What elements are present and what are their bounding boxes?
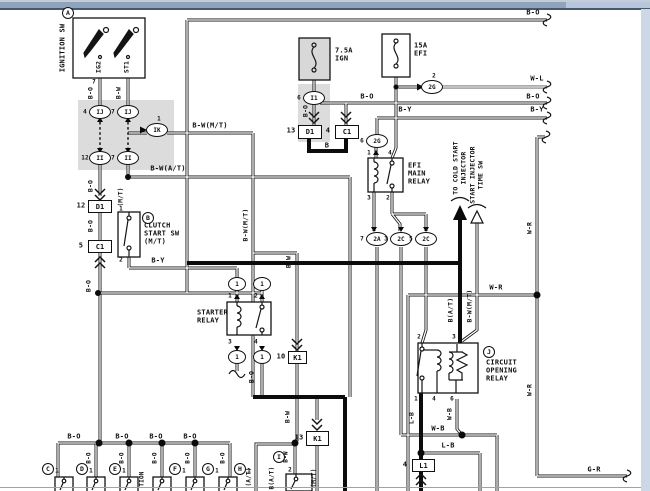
solid-arrowhead <box>453 205 467 220</box>
label-b-w-a-t: B-W(A/T) <box>150 166 185 173</box>
titlebar-edge <box>0 8 650 10</box>
connector-num-12-ii: 12 <box>81 155 89 162</box>
circle-label-b: B <box>142 212 154 224</box>
label-b-o: B-O <box>88 87 95 99</box>
label-relay: RELAY <box>197 318 219 325</box>
label-start-injector: START INJECTOR <box>470 146 477 204</box>
label-1: 1 <box>247 468 251 475</box>
circle-label-d: D <box>76 463 88 475</box>
label-b-o: B-O <box>185 452 192 463</box>
label-b-o: B-O <box>152 452 159 463</box>
wire-group-doubled <box>58 20 627 491</box>
wire-b-w-mt-arrow <box>462 222 477 341</box>
label-relay: RELAY <box>408 179 430 186</box>
label-1: 1 <box>215 468 219 475</box>
connector-oval-1: 1 <box>253 277 271 291</box>
label-w-r: W-R <box>527 222 534 234</box>
brace-left <box>451 198 469 202</box>
ground-icon <box>229 371 245 378</box>
label-1: 1 <box>119 206 123 213</box>
label-2: 2 <box>417 334 421 341</box>
label-tion: TION <box>139 471 146 486</box>
open-arrowhead <box>471 211 483 223</box>
label-ignition-sw: IGNITION SW <box>60 24 67 73</box>
connector-num-4-l1: 4 <box>403 461 407 468</box>
label-b-o: B-O <box>220 452 227 463</box>
label-injector: INJECTOR <box>461 152 468 185</box>
page-bottom-rule <box>0 487 641 488</box>
label-b-o: B-O <box>86 452 93 463</box>
label-b-o: B-O <box>67 434 80 441</box>
wire-w-r-vert <box>537 137 627 476</box>
connector-oval-2-2g: 2G <box>421 80 443 94</box>
circle-label-h: H <box>234 463 246 475</box>
label-b-y: B-Y <box>530 107 543 114</box>
efi-main-relay-box <box>368 158 403 192</box>
label-b-w: B-W <box>285 411 292 423</box>
label-to-cold-start: TO COLD START <box>453 141 460 194</box>
ignition-switch-box <box>73 18 145 78</box>
label-b-a-t: B(A/T) <box>448 298 455 323</box>
label-15a: 15A <box>414 43 427 50</box>
connector-oval-1: 1 <box>253 350 271 364</box>
label-1: 1 <box>182 468 186 475</box>
wire-group-doubled <box>58 20 627 491</box>
label-w-b: W-B <box>431 426 444 433</box>
connector-box-4-c1: C1 <box>335 125 359 139</box>
connector-num-4-c1: 4 <box>326 128 330 135</box>
wire-w-r-vert <box>537 137 627 476</box>
label-b-a-t: B(A/T) <box>269 467 276 490</box>
connector-num-12-d1: 12 <box>77 202 86 209</box>
connector-box-12-d1: D1 <box>88 200 112 213</box>
label-b-o: B-O <box>303 105 310 117</box>
label-2: 2 <box>254 293 258 300</box>
label-1: 1 <box>414 396 418 403</box>
connector-num-6-i1: 6 <box>297 95 301 102</box>
window-right-edge <box>641 9 650 491</box>
label-b-w: B-W <box>116 87 123 99</box>
label-b-y: B-Y <box>398 107 411 114</box>
connector-num-5-2c: 5 <box>409 236 413 243</box>
label-g-r: G-R <box>587 467 600 474</box>
label-efi: EFI <box>408 163 421 170</box>
label-1: 1 <box>228 293 232 300</box>
connector-num-10-k1: 10 <box>277 353 286 360</box>
label-b-o: B-O <box>526 10 539 17</box>
connector-num-7-ij: 7 <box>111 109 115 116</box>
connector-oval-1: 1 <box>228 277 246 291</box>
label-4: 4 <box>432 396 436 403</box>
connector-num-5-c1: 5 <box>79 242 83 249</box>
label-l-b: L-B <box>409 412 416 424</box>
label-opening: OPENING <box>486 368 517 375</box>
label-2: 2 <box>119 257 123 264</box>
wiring-diagram-page: IGNITION SWIG2ST17B-OB-WB-W(M/T)B-W(A/T)… <box>0 0 650 491</box>
label-b-o: B-O <box>115 434 128 441</box>
connector-oval-12-ii: II <box>89 151 111 165</box>
label-relay: RELAY <box>486 376 508 383</box>
connector-box-4-l1: L1 <box>412 459 435 472</box>
label-b-o: B-O <box>88 220 95 232</box>
label-starter: STARTER <box>197 310 228 317</box>
wire-b-y-clutch <box>129 257 237 278</box>
label-b-y: B-Y <box>151 258 164 265</box>
label-3: 3 <box>228 339 232 346</box>
label-w-r: W-R <box>489 285 502 292</box>
label-b-w-m-t: B-W(M/T) <box>467 290 474 323</box>
label-time-sw: TIME SW <box>478 161 485 190</box>
connector-oval-1-ik: IK <box>146 123 168 137</box>
connector-num-13-k1: 13 <box>295 434 304 441</box>
label-b-o: B-O <box>249 371 256 383</box>
label-b-o: B-O <box>149 434 162 441</box>
circle-label-e: E <box>109 463 121 475</box>
label-3: 3 <box>452 334 456 341</box>
label-st1: ST1 <box>124 61 131 73</box>
label-l-b: L-B <box>441 443 454 450</box>
connector-num-6-2g: 6 <box>360 138 364 145</box>
label-b-w: B-W <box>286 256 293 268</box>
label-ig2: IG2 <box>96 61 103 73</box>
label-start-sw: START SW <box>144 231 179 238</box>
label-b-o: B-O <box>119 452 126 463</box>
circle-label-c: C <box>42 463 54 475</box>
label-4: 4 <box>254 339 258 346</box>
label-4: 4 <box>388 150 392 157</box>
circle-label-a: A <box>62 7 74 19</box>
label-m-t: (M/T) <box>118 187 125 206</box>
circle-label-g: G <box>202 463 214 475</box>
connector-num-13-d1: 13 <box>287 128 296 135</box>
connector-num-2-2g: 2 <box>432 73 436 80</box>
connector-box-13-k1: K1 <box>306 431 329 446</box>
label-b-o: B-O <box>360 94 373 101</box>
label-b-w-m-t: B-W(M/T) <box>243 209 250 242</box>
connector-oval-6-2g: 2G <box>366 134 388 148</box>
label-1: 1 <box>89 468 93 475</box>
connector-oval-7-ij: IJ <box>117 105 139 119</box>
label-b: B <box>325 143 329 150</box>
circle-label-j: J <box>483 346 495 358</box>
label-w-b: W-B <box>447 408 454 420</box>
label-3: 3 <box>367 195 371 202</box>
connector-oval-4-ij: IJ <box>89 105 111 119</box>
label-w-r: W-R <box>527 384 534 396</box>
label-b-o: B-O <box>86 280 93 292</box>
connector-oval-7-ii: II <box>117 151 139 165</box>
label-b-w-m-t: B-W(M/T) <box>192 123 227 130</box>
connector-oval-5-2c: 2C <box>415 232 437 246</box>
label-w-l: W-L <box>530 76 543 83</box>
label-2: 2 <box>386 195 390 202</box>
label-1: 1 <box>367 150 371 157</box>
label-b-o: B-O <box>526 94 539 101</box>
connector-num-7-ii: 7 <box>111 155 115 162</box>
label-1: 1 <box>122 468 126 475</box>
connector-num-3-2c: 3 <box>384 236 388 243</box>
label-m-t: (M/T) <box>311 468 318 487</box>
connector-box-13-d1: D1 <box>298 125 322 139</box>
circle-label-i: I <box>273 451 285 463</box>
label-1: 1 <box>55 468 59 475</box>
label-b-o: B-O <box>88 180 95 192</box>
connector-num-7-2a: 7 <box>360 236 364 243</box>
label-ign: IGN <box>335 56 348 63</box>
connector-oval-6-i1: I1 <box>303 91 325 105</box>
label-7: 7 <box>92 79 96 86</box>
connector-num-1-ik: 1 <box>157 116 161 123</box>
label-7-5a: 7.5A <box>335 48 353 55</box>
fuse-efi-box <box>382 34 410 77</box>
connector-oval-1: 1 <box>228 350 246 364</box>
label-2: 2 <box>288 467 292 474</box>
connector-num-4-ij: 4 <box>83 109 87 116</box>
label-6: 6 <box>450 396 454 403</box>
label-main: MAIN <box>408 171 426 178</box>
switch-box-i <box>286 474 312 491</box>
brace-right <box>468 205 486 209</box>
label-efi: EFI <box>414 51 427 58</box>
label-b-o: B-O <box>183 434 196 441</box>
connector-box-10-k1: K1 <box>288 351 307 364</box>
circle-label-f: F <box>169 463 181 475</box>
connector-box-5-c1: C1 <box>88 240 112 253</box>
wire-b-w-mt-arrow <box>462 222 477 341</box>
label-circuit: CIRCUIT <box>486 360 517 367</box>
label-m-t: (M/T) <box>144 239 166 246</box>
